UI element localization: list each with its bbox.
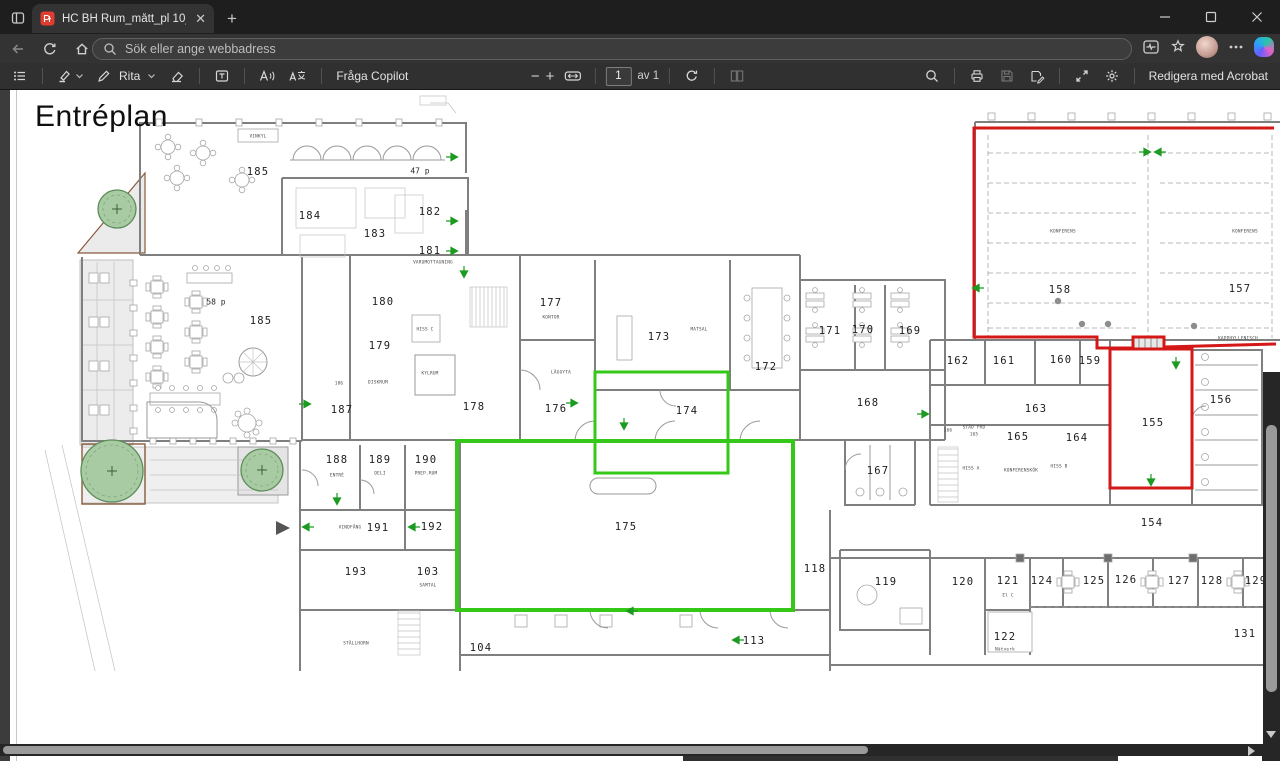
green-arrow-icon (460, 266, 467, 278)
green-arrow-icon (620, 418, 627, 430)
address-placeholder: Sök eller ange webbadress (125, 42, 276, 56)
room-label: 157 (1229, 283, 1252, 295)
room-label: 121 (997, 575, 1020, 587)
room-label: 104 (470, 642, 493, 654)
room-label: 161 (993, 355, 1016, 367)
column-dot (1079, 321, 1085, 327)
chevron-down-icon[interactable] (147, 72, 156, 80)
green-arrow-icon (299, 400, 311, 407)
room-label: DISKRUM (368, 380, 388, 386)
room-label: KYLRUM (421, 371, 438, 377)
room-label: 58 p (206, 298, 225, 307)
room-label: 180 (372, 296, 395, 308)
room-label: HISS A (962, 466, 979, 472)
room-label: 127 (1168, 575, 1191, 587)
green-arrow-icon (446, 217, 458, 224)
refresh-icon[interactable] (36, 37, 64, 61)
room-label: STÄLLHORN (343, 640, 369, 647)
active-tab[interactable]: HC BH Rum_mått_pl 10_11_liten.p ✕ (32, 4, 214, 33)
column-dot (1191, 323, 1197, 329)
room-label: 103 (417, 566, 440, 578)
room-label: KONFERENS (1232, 229, 1258, 235)
room-label: 159 (1079, 355, 1102, 367)
back-icon[interactable] (4, 37, 32, 61)
green-arrow-icon (1172, 357, 1179, 369)
room-label: 126 (1115, 574, 1138, 586)
room-label: 173 (648, 331, 671, 343)
scrollbar-corner (1262, 744, 1280, 761)
address-bar[interactable]: Sök eller ange webbadress (92, 38, 1132, 60)
search-document-icon[interactable] (920, 65, 944, 87)
draw-pen-icon[interactable]: Rita (93, 65, 159, 87)
room-label: 179 (369, 340, 392, 352)
room-label: HISS B (1050, 464, 1067, 470)
room-label: HISS C (416, 327, 433, 333)
room-label: 158 (1049, 284, 1072, 296)
room-label: 47 p (410, 167, 429, 176)
green-arrow-icon (303, 523, 315, 530)
room-label: VINKYL (249, 134, 266, 140)
room-label: 189 (369, 454, 392, 466)
draw-label[interactable]: Rita (115, 69, 144, 83)
room-label: KONFERENSKÖK (1004, 467, 1038, 474)
room-label: 166 (944, 428, 953, 434)
room-label: 164 (1066, 432, 1089, 444)
pdf-toolbar: Rita Fråga Copilot − + av 1 Redigera me (0, 63, 1280, 90)
room-label: 172 (755, 361, 778, 373)
room-label: 169 (899, 325, 922, 337)
room-label: 162 (947, 355, 970, 367)
horizontal-scrollbar-thumb[interactable] (3, 746, 868, 754)
green-highlight-rect (595, 372, 728, 473)
room-label: 125 (1083, 575, 1106, 587)
room-label: 128 (1201, 575, 1224, 587)
room-label: LÄGGYTA (551, 369, 571, 376)
rotate-icon[interactable] (680, 65, 704, 87)
room-label: 160 (1050, 354, 1073, 366)
room-label: PREP.RUM (415, 471, 438, 477)
search-icon (103, 42, 117, 56)
eraser-icon[interactable] (165, 65, 189, 87)
maximize-button[interactable] (1188, 0, 1234, 33)
room-label: 163 (1025, 403, 1048, 415)
page-count-label: av 1 (637, 70, 659, 82)
room-label: 191 (367, 522, 390, 534)
entrance-arrow (276, 521, 290, 535)
column-dot (1105, 321, 1111, 327)
room-label: 155 (1142, 417, 1165, 429)
green-arrow-icon (333, 493, 340, 505)
room-label: 122 (994, 631, 1017, 643)
minimize-button[interactable] (1142, 0, 1188, 33)
room-label: STÄD FRD (963, 424, 986, 431)
room-label: 156 (1210, 394, 1233, 406)
room-label: 119 (875, 576, 898, 588)
green-arrow-icon (566, 399, 578, 406)
print-icon[interactable] (965, 65, 989, 87)
walls (82, 113, 1280, 671)
settings-menu-icon[interactable] (1227, 38, 1245, 56)
room-label: 193 (345, 566, 368, 578)
new-tab-button[interactable]: + (222, 9, 242, 29)
zoom-in-button[interactable]: + (546, 69, 555, 84)
green-arrow-icon (1139, 148, 1151, 155)
room-label: Nätverk (995, 647, 1015, 653)
room-label: 124 (1031, 575, 1054, 587)
browser-essentials-icon[interactable] (1142, 38, 1160, 56)
tab-close-icon[interactable]: ✕ (195, 12, 206, 25)
room-label: 181 (419, 245, 442, 257)
chevron-down-icon[interactable] (75, 72, 84, 80)
room-label: KAPPHYLLENISCH (1218, 336, 1258, 342)
zoom-out-button[interactable]: − (531, 69, 540, 84)
room-label: DELI (374, 471, 386, 477)
room-label: 175 (615, 521, 638, 533)
read-aloud-icon[interactable] (255, 65, 279, 87)
edit-with-acrobat-button[interactable]: Redigera med Acrobat (1145, 69, 1272, 83)
page-title: Entréplan (35, 100, 168, 134)
window-controls (1142, 0, 1280, 33)
highlighter-icon[interactable] (53, 65, 87, 87)
room-label: 113 (743, 635, 766, 647)
save-as-icon[interactable] (1025, 65, 1049, 87)
room-label: 174 (676, 405, 699, 417)
copilot-icon[interactable] (1254, 37, 1274, 57)
green-arrow-icon (446, 153, 458, 160)
browser-titlebar: HC BH Rum_mått_pl 10_11_liten.p ✕ + (0, 0, 1280, 34)
room-label: 120 (952, 576, 975, 588)
room-label: 187 (331, 404, 354, 416)
room-label: 184 (299, 210, 322, 222)
room-label: 185 (247, 166, 270, 178)
room-label: 168 (857, 397, 880, 409)
ask-copilot-button[interactable]: Fråga Copilot (332, 69, 412, 83)
pdf-favicon (40, 11, 55, 26)
favorites-icon[interactable] (1169, 38, 1187, 56)
room-label: 178 (463, 401, 486, 413)
floor-plan: 18547 pVINKYL184183182181VARUMOTTAGNING1… (10, 90, 1280, 761)
room-label: 165 (970, 432, 979, 438)
room-label: 170 (852, 324, 875, 336)
room-label: VARUMOTTAGNING (413, 260, 453, 266)
tab-title: HC BH Rum_mått_pl 10_11_liten.p (62, 13, 186, 25)
room-label: 177 (540, 297, 563, 309)
tab-actions-icon[interactable] (8, 8, 28, 28)
vertical-scrollbar-thumb[interactable] (1266, 425, 1277, 692)
close-button[interactable] (1234, 0, 1280, 33)
room-label: El C (1002, 593, 1014, 599)
scroll-right-icon[interactable] (1248, 746, 1255, 756)
green-arrow-icon (917, 410, 929, 417)
room-label: 190 (415, 454, 438, 466)
room-label: 171 (819, 325, 842, 337)
red-highlight-path (974, 128, 1276, 348)
room-label: 186 (335, 381, 344, 387)
room-label: VINDFÅNG (339, 524, 362, 531)
column-dot (1055, 298, 1061, 304)
room-label: 165 (1007, 431, 1030, 443)
room-label: 185 (250, 315, 273, 327)
save-icon (995, 65, 1019, 87)
green-arrow-icon (446, 247, 458, 254)
scroll-down-icon[interactable] (1266, 731, 1276, 738)
fullscreen-icon[interactable] (1070, 65, 1094, 87)
room-label: SAMTAL (419, 583, 436, 589)
room-label: MATSAL (690, 327, 707, 333)
green-arrow-icon (1147, 474, 1154, 486)
room-label: 182 (419, 206, 442, 218)
pdf-page: Entréplan (10, 90, 1280, 761)
profile-avatar[interactable] (1196, 36, 1218, 58)
room-label: KONTOR (542, 315, 559, 321)
contents-icon[interactable] (8, 65, 32, 87)
room-label: 176 (545, 403, 568, 415)
room-label: KONFERENS (1050, 229, 1076, 235)
room-label: 118 (804, 563, 827, 575)
room-label: 154 (1141, 517, 1164, 529)
page-view-icon (725, 65, 749, 87)
room-label: 188 (326, 454, 349, 466)
viewer-left-gutter (0, 90, 10, 761)
page-number-input[interactable] (605, 67, 631, 86)
room-label: 192 (421, 521, 444, 533)
pdf-settings-gear-icon[interactable] (1100, 65, 1124, 87)
room-label: 183 (364, 228, 387, 240)
add-text-icon[interactable] (210, 65, 234, 87)
furniture (89, 96, 1280, 655)
room-label: ENTRÉ (330, 471, 344, 479)
page-frame-line (16, 90, 17, 761)
room-label: 167 (867, 465, 890, 477)
fit-width-icon[interactable] (560, 65, 584, 87)
green-arrow-icon (1155, 148, 1167, 155)
green-arrow-icon (409, 523, 421, 530)
translate-icon[interactable] (285, 65, 311, 87)
pdf-viewer: Entréplan (0, 90, 1280, 761)
room-label: 131 (1234, 628, 1257, 640)
